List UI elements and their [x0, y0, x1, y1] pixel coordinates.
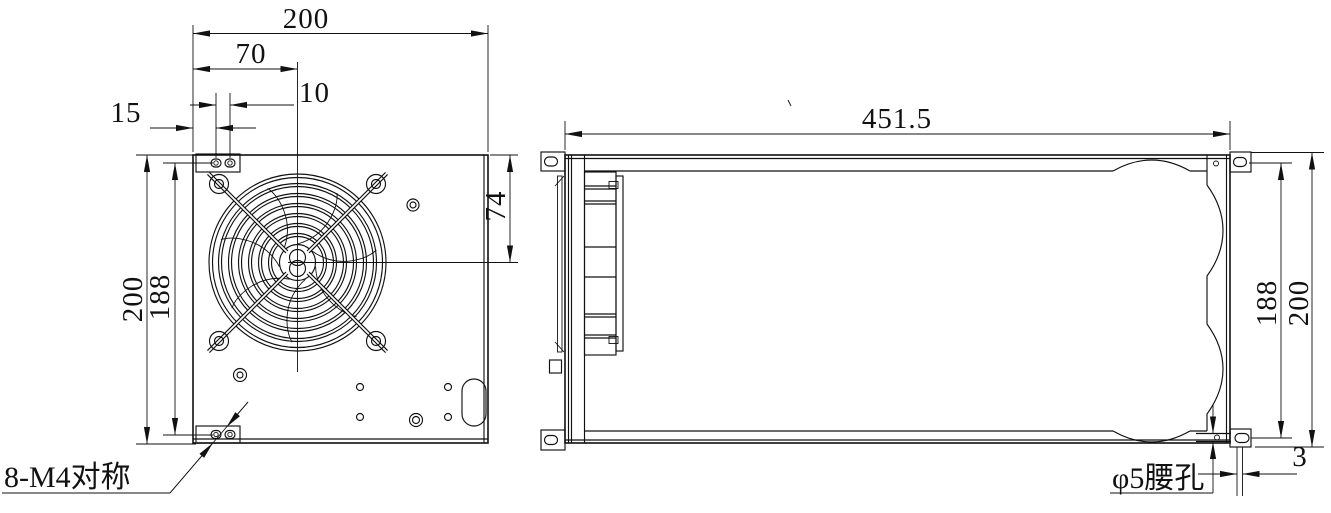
dim-front-hole-pitch: 10: [190, 77, 330, 158]
front-view: 200 70 10 15 200: [2, 3, 518, 494]
dim-front-mount-span: 188: [144, 163, 213, 435]
mount-holes-label: 8-M4对称: [4, 461, 131, 494]
side-small-tab: [550, 360, 562, 373]
side-fan-profile: [550, 172, 624, 373]
dim-label-15: 15: [111, 97, 142, 129]
dim-label-70: 70: [236, 38, 267, 70]
dim-side-length: 451.5: [565, 103, 1230, 150]
dim-label-74: 74: [480, 191, 512, 222]
dim-label-188-front: 188: [144, 274, 176, 321]
oval-slot: [462, 379, 486, 426]
side-mount-tab-top-left: [541, 152, 565, 171]
side-body-outline: [565, 155, 1230, 443]
dim-label-188-side: 188: [1251, 280, 1283, 327]
dim-front-fan-center-y: 74: [480, 155, 518, 263]
leader-slot-hole: φ5腰孔: [1110, 404, 1213, 495]
dim-front-fan-center-x: 70: [193, 38, 298, 70]
slot-hole-label: φ5腰孔: [1112, 462, 1204, 495]
dim-front-width: 200: [193, 3, 488, 152]
side-view: 451.5 188 200 φ5腰孔 3: [541, 100, 1324, 496]
dim-label-200-side: 200: [1283, 280, 1315, 327]
leader-mount-holes: 8-M4对称: [2, 402, 248, 494]
front-mount-tab-bottom: [196, 426, 240, 443]
dim-front-edge-to-hole: 15: [111, 97, 257, 129]
dim-label-451-5: 451.5: [862, 103, 932, 135]
dim-label-10: 10: [299, 77, 330, 109]
dim-label-3: 3: [1292, 441, 1308, 473]
side-mount-tab-top-right: [1230, 152, 1251, 172]
dim-side-slot-offset: 3: [1198, 441, 1308, 496]
technical-drawing: 200 70 10 15 200: [0, 0, 1331, 513]
engineering-drawing-page: 200 70 10 15 200: [0, 0, 1331, 513]
side-holes: [1196, 161, 1231, 442]
side-mount-tab-bottom-left: [541, 430, 565, 450]
dim-label-width-200: 200: [283, 3, 330, 35]
side-mount-tab-bottom-right: [1230, 429, 1251, 447]
side-scalloped-cutout: [1207, 155, 1223, 431]
side-fan-guard-edge: [555, 176, 564, 352]
stray-mark: [788, 100, 791, 106]
